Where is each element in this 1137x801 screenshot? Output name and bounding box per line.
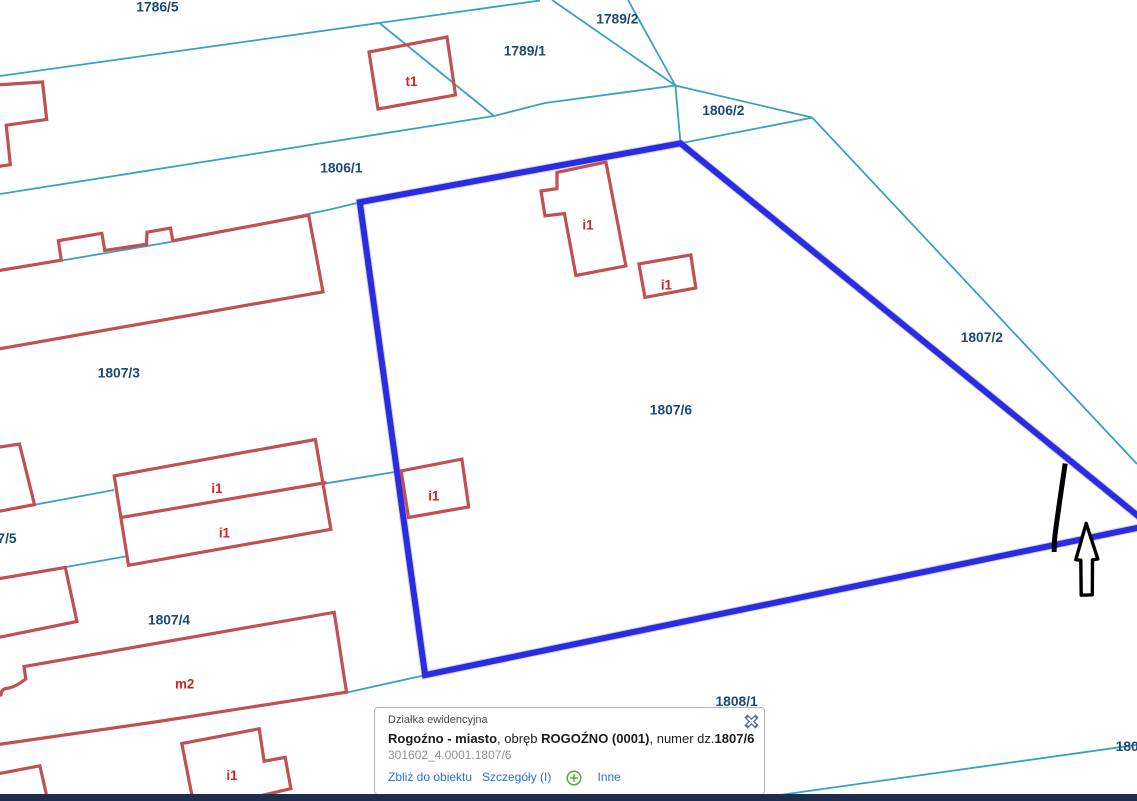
svg-text:1807/4: 1807/4 <box>148 612 191 627</box>
svg-text:1806/2: 1806/2 <box>702 103 745 118</box>
svg-text:1807/6: 1807/6 <box>650 403 693 418</box>
svg-text:i1: i1 <box>428 489 440 504</box>
svg-text:1808/2: 1808/2 <box>1116 739 1137 754</box>
svg-text:i1: i1 <box>226 768 238 783</box>
svg-text:t1: t1 <box>406 74 418 89</box>
svg-text:1786/5: 1786/5 <box>136 0 179 14</box>
svg-text:i1: i1 <box>661 278 673 293</box>
svg-text:m2: m2 <box>175 677 194 692</box>
svg-text:1789/2: 1789/2 <box>596 11 639 26</box>
svg-text:1806/1: 1806/1 <box>320 160 363 175</box>
svg-text:i1: i1 <box>582 218 594 233</box>
svg-text:1789/1: 1789/1 <box>504 43 547 58</box>
svg-text:1807/5: 1807/5 <box>0 531 17 546</box>
svg-text:i1: i1 <box>219 526 231 541</box>
svg-text:i1: i1 <box>211 481 223 496</box>
svg-text:1807/3: 1807/3 <box>98 365 141 380</box>
svg-text:1807/2: 1807/2 <box>961 330 1004 345</box>
